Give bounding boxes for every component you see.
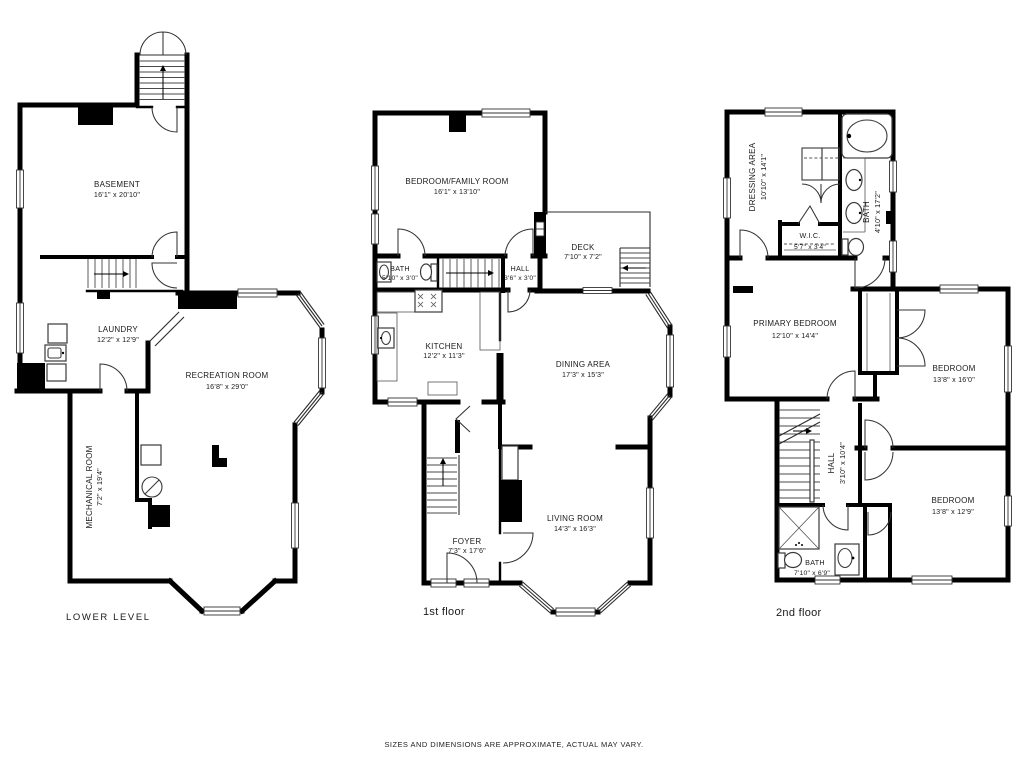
room-dims-foyer: 7'3" x 17'6" [448, 546, 486, 555]
room-label-bath1: BATH [390, 264, 410, 273]
closet-double-doors [802, 184, 840, 203]
room-label-primary: PRIMARY BEDROOM [753, 319, 837, 328]
front-door [447, 553, 477, 583]
room-label-basement: BASEMENT [94, 180, 140, 189]
room-dims-mechanical: 7'2" x 19'4" [95, 468, 104, 506]
sink-icon [846, 203, 862, 224]
room-label-deck: DECK [571, 243, 595, 252]
second-floor-plan: DRESSING AREA 10'10" x 14'1" W.I.C. 5'7"… [724, 108, 1012, 619]
cased-opening [150, 312, 184, 346]
sink-icon [846, 170, 862, 191]
laundry-fixtures [45, 324, 67, 381]
caption-second-floor: 2nd floor [776, 607, 822, 619]
room-label-recreation: RECREATION ROOM [186, 371, 269, 380]
mechanical-fixtures [141, 445, 162, 497]
furnace-icon [141, 445, 161, 465]
room-label-bath2: BATH [862, 201, 871, 223]
foyer-stairs-icon [427, 455, 459, 515]
toilet-icon [778, 553, 802, 569]
open-door [798, 206, 820, 224]
fireplace-hearth [502, 446, 518, 480]
room-label-kitchen: KITCHEN [426, 342, 463, 351]
main-stairs-icon [443, 259, 499, 288]
room-label-bath3: BATH [805, 558, 825, 567]
chimney-block [78, 105, 113, 125]
first-floor-plan: BEDROOM/FAMILY ROOM 16'1" x 13'10" BATH … [372, 109, 674, 618]
caption-first-floor: 1st floor [423, 606, 465, 618]
room-dims-wic: 5'7" x 3'4" [794, 244, 826, 251]
closet-double-doors [897, 310, 925, 366]
room-dims-deck: 7'10" x 7'2" [564, 252, 602, 261]
sink-icon [835, 544, 859, 575]
room-label-laundry: LAUNDRY [98, 325, 138, 334]
room-label-hall2: HALL [827, 452, 836, 473]
room-dims-bedroom-family: 16'1" x 13'10" [434, 187, 480, 196]
hall-stairs-icon [779, 410, 820, 502]
water-heater-icon [142, 477, 162, 497]
room-dims-dining: 17'3" x 15'3" [562, 370, 604, 379]
room-label-foyer: FOYER [453, 537, 482, 546]
bulkhead-doors [140, 32, 186, 55]
fireplace-block [501, 480, 522, 522]
room-label-dining: DINING AREA [556, 360, 611, 369]
dressing-closet [802, 148, 839, 180]
room-dims-bath3: 7'10" x 6'9" [794, 570, 830, 577]
room-label-dressing: DRESSING AREA [748, 142, 757, 211]
room-dims-dressing: 10'10" x 14'1" [759, 154, 768, 200]
lower-level-plan: BASEMENT 16'1" x 20'10" LAUNDRY 12'2" x … [17, 32, 326, 623]
room-dims-basement: 16'1" x 20'10" [94, 190, 140, 199]
room-dims-bedroom-1: 13'8" x 16'0" [933, 375, 975, 384]
room-dims-primary: 12'10" x 14'4" [772, 331, 818, 340]
doors [398, 229, 533, 583]
disclaimer-text: SIZES AND DIMENSIONS ARE APPROXIMATE, AC… [384, 740, 643, 749]
room-label-hall1: HALL [511, 264, 530, 273]
doors [100, 107, 177, 391]
caption-lower-level: LOWER LEVEL [66, 612, 151, 623]
room-dims-living: 14'3" x 16'3" [554, 524, 596, 533]
washer-icon [48, 324, 67, 343]
room-dims-laundry: 12'2" x 12'9" [97, 335, 139, 344]
toilet-icon [842, 239, 864, 256]
floorplan-svg: BASEMENT 16'1" x 20'10" LAUNDRY 12'2" x … [0, 0, 1024, 768]
room-dims-hall1: 3'6" x 3'0" [504, 275, 536, 282]
kitchen-island [428, 382, 457, 395]
walls [375, 113, 670, 612]
stove-icon [415, 290, 442, 312]
room-label-bedroom-family: BEDROOM/FAMILY ROOM [405, 177, 508, 186]
toilet-icon [421, 264, 438, 281]
room-label-bedroom-2: BEDROOM [931, 496, 974, 505]
support-post [212, 445, 227, 467]
room-label-living: LIVING ROOM [547, 514, 603, 523]
bulkhead-stairs-icon [139, 61, 185, 100]
deck-outline [545, 212, 650, 287]
room-label-bedroom-1: BEDROOM [932, 364, 975, 373]
room-dims-bath1: 5'10" x 3'0" [382, 275, 418, 282]
chimney-block [449, 113, 466, 132]
room-dims-kitchen: 12'2" x 11'3" [423, 351, 465, 360]
utility-sink-icon [45, 345, 66, 361]
floorplan-page: BASEMENT 16'1" x 20'10" LAUNDRY 12'2" x … [0, 0, 1024, 768]
room-dims-bedroom-2: 13'8" x 12'9" [932, 507, 974, 516]
room-label-mechanical: MECHANICAL ROOM [85, 445, 94, 528]
basement-stairs-icon [88, 259, 136, 288]
shower-icon [779, 507, 819, 549]
dryer-icon [47, 364, 66, 381]
room-dims-recreation: 16'8" x 29'0" [206, 382, 248, 391]
room-dims-hall2: 3'10" x 10'4" [838, 442, 847, 484]
bathtub-icon [842, 114, 892, 158]
room-label-wic: W.I.C. [799, 231, 820, 240]
room-dims-bath2: 4'10" x 17'2" [873, 191, 882, 233]
kitchen-sink-icon [378, 328, 394, 348]
bath-fixtures-top [842, 114, 892, 256]
